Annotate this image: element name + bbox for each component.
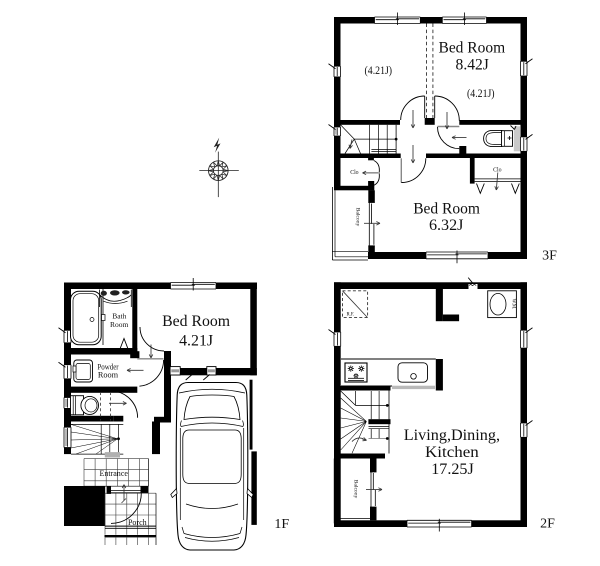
svg-text:Room: Room <box>98 370 119 379</box>
svg-text:4.21J: 4.21J <box>179 332 213 350</box>
svg-text:(4.21J): (4.21J) <box>365 65 393 77</box>
svg-text:R.F.: R.F. <box>347 313 355 318</box>
svg-text:8.42J: 8.42J <box>456 56 489 74</box>
svg-text:17.25J: 17.25J <box>431 460 474 478</box>
svg-text:Bed Room: Bed Room <box>162 312 230 330</box>
svg-text:Room: Room <box>110 320 129 329</box>
svg-text:1F: 1F <box>274 517 289 532</box>
svg-text:Bed Room: Bed Room <box>439 39 506 57</box>
svg-text:Clo: Clo <box>350 170 358 176</box>
svg-text:2F: 2F <box>540 517 555 532</box>
svg-text:Bath: Bath <box>112 311 126 320</box>
svg-text:Bed Room: Bed Room <box>413 200 480 218</box>
svg-text:Porch: Porch <box>128 518 147 527</box>
svg-text:W.M.: W.M. <box>511 299 516 310</box>
svg-text:Clo: Clo <box>493 168 501 174</box>
svg-text:Kitchen: Kitchen <box>425 443 479 461</box>
svg-text:Balcony: Balcony <box>355 208 361 227</box>
svg-text:Balcony: Balcony <box>353 480 359 499</box>
svg-text:6.32J: 6.32J <box>429 216 464 234</box>
svg-text:Entrance: Entrance <box>99 469 128 478</box>
svg-text:3F: 3F <box>542 248 557 263</box>
svg-text:Living,Dining,: Living,Dining, <box>404 426 500 444</box>
svg-text:(4.21J): (4.21J) <box>467 88 495 100</box>
